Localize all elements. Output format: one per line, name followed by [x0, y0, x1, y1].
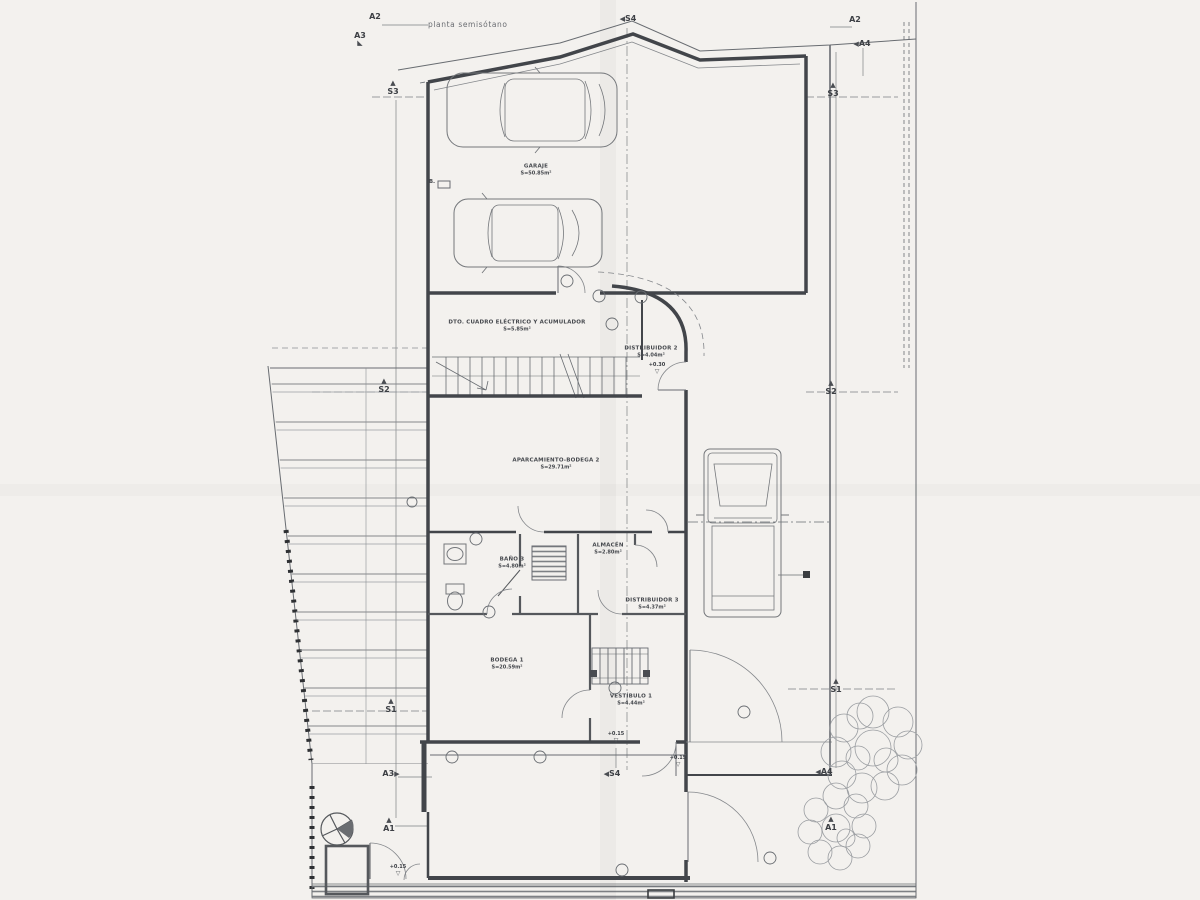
section-marker-a1: ▲A1	[383, 817, 395, 833]
section-marker-s4: ◀S4	[620, 15, 637, 23]
section-marker-a3: A3▶	[382, 770, 399, 778]
plan-labels-layer: GARAJES=50.85m²DTO. CUADRO ELÉCTRICO Y A…	[0, 0, 1200, 900]
section-marker-s3: ▲S3	[827, 82, 838, 98]
section-marker-a3: A3◣	[354, 32, 366, 48]
room-label: ALMACÉNS=2.80m²	[592, 542, 623, 555]
section-marker-s2: ▲S2	[378, 378, 389, 394]
scanned-floorplan-page: planta semisótano GARAJES=50.85m²DTO. CU…	[0, 0, 1200, 900]
room-label: BAÑO 3S=4.80m²	[498, 556, 526, 569]
section-marker-a4: ◀A4	[853, 40, 870, 48]
room-label: BODEGA 1S=20.59m²	[490, 657, 523, 670]
section-marker-a2: A2	[369, 13, 381, 21]
section-marker-s4: ◀S4	[604, 770, 621, 778]
section-marker-a1: ▲A1	[825, 816, 837, 832]
section-marker-s1: ▲S1	[385, 698, 396, 714]
room-label: VESTÍBULO 1S=4.44m²	[610, 693, 652, 706]
room-label: APARCAMIENTO-BODEGA 2S=29.71m²	[512, 457, 599, 470]
misc-label: B.	[429, 179, 435, 185]
section-marker-s1: ▲S1	[830, 678, 841, 694]
level-marker: +0.15▽	[608, 732, 625, 744]
room-label: DISTRIBUIDOR 2S=4.04m²	[624, 345, 677, 358]
section-marker-a2: A2	[849, 16, 861, 24]
room-label: GARAJES=50.85m²	[520, 163, 551, 176]
level-marker: +0.30▽	[649, 363, 666, 375]
level-marker: +0.15▽	[670, 756, 687, 768]
room-label: DISTRIBUIDOR 3S=4.37m²	[625, 597, 678, 610]
level-marker: +0.15▽	[390, 865, 407, 877]
section-marker-s2: ▲S2	[825, 380, 836, 396]
section-marker-s3: ▲S3	[387, 80, 398, 96]
room-label: DTO. CUADRO ELÉCTRICO Y ACUMULADORS=5.85…	[448, 319, 585, 332]
section-marker-a4: ◀A4	[815, 768, 832, 776]
